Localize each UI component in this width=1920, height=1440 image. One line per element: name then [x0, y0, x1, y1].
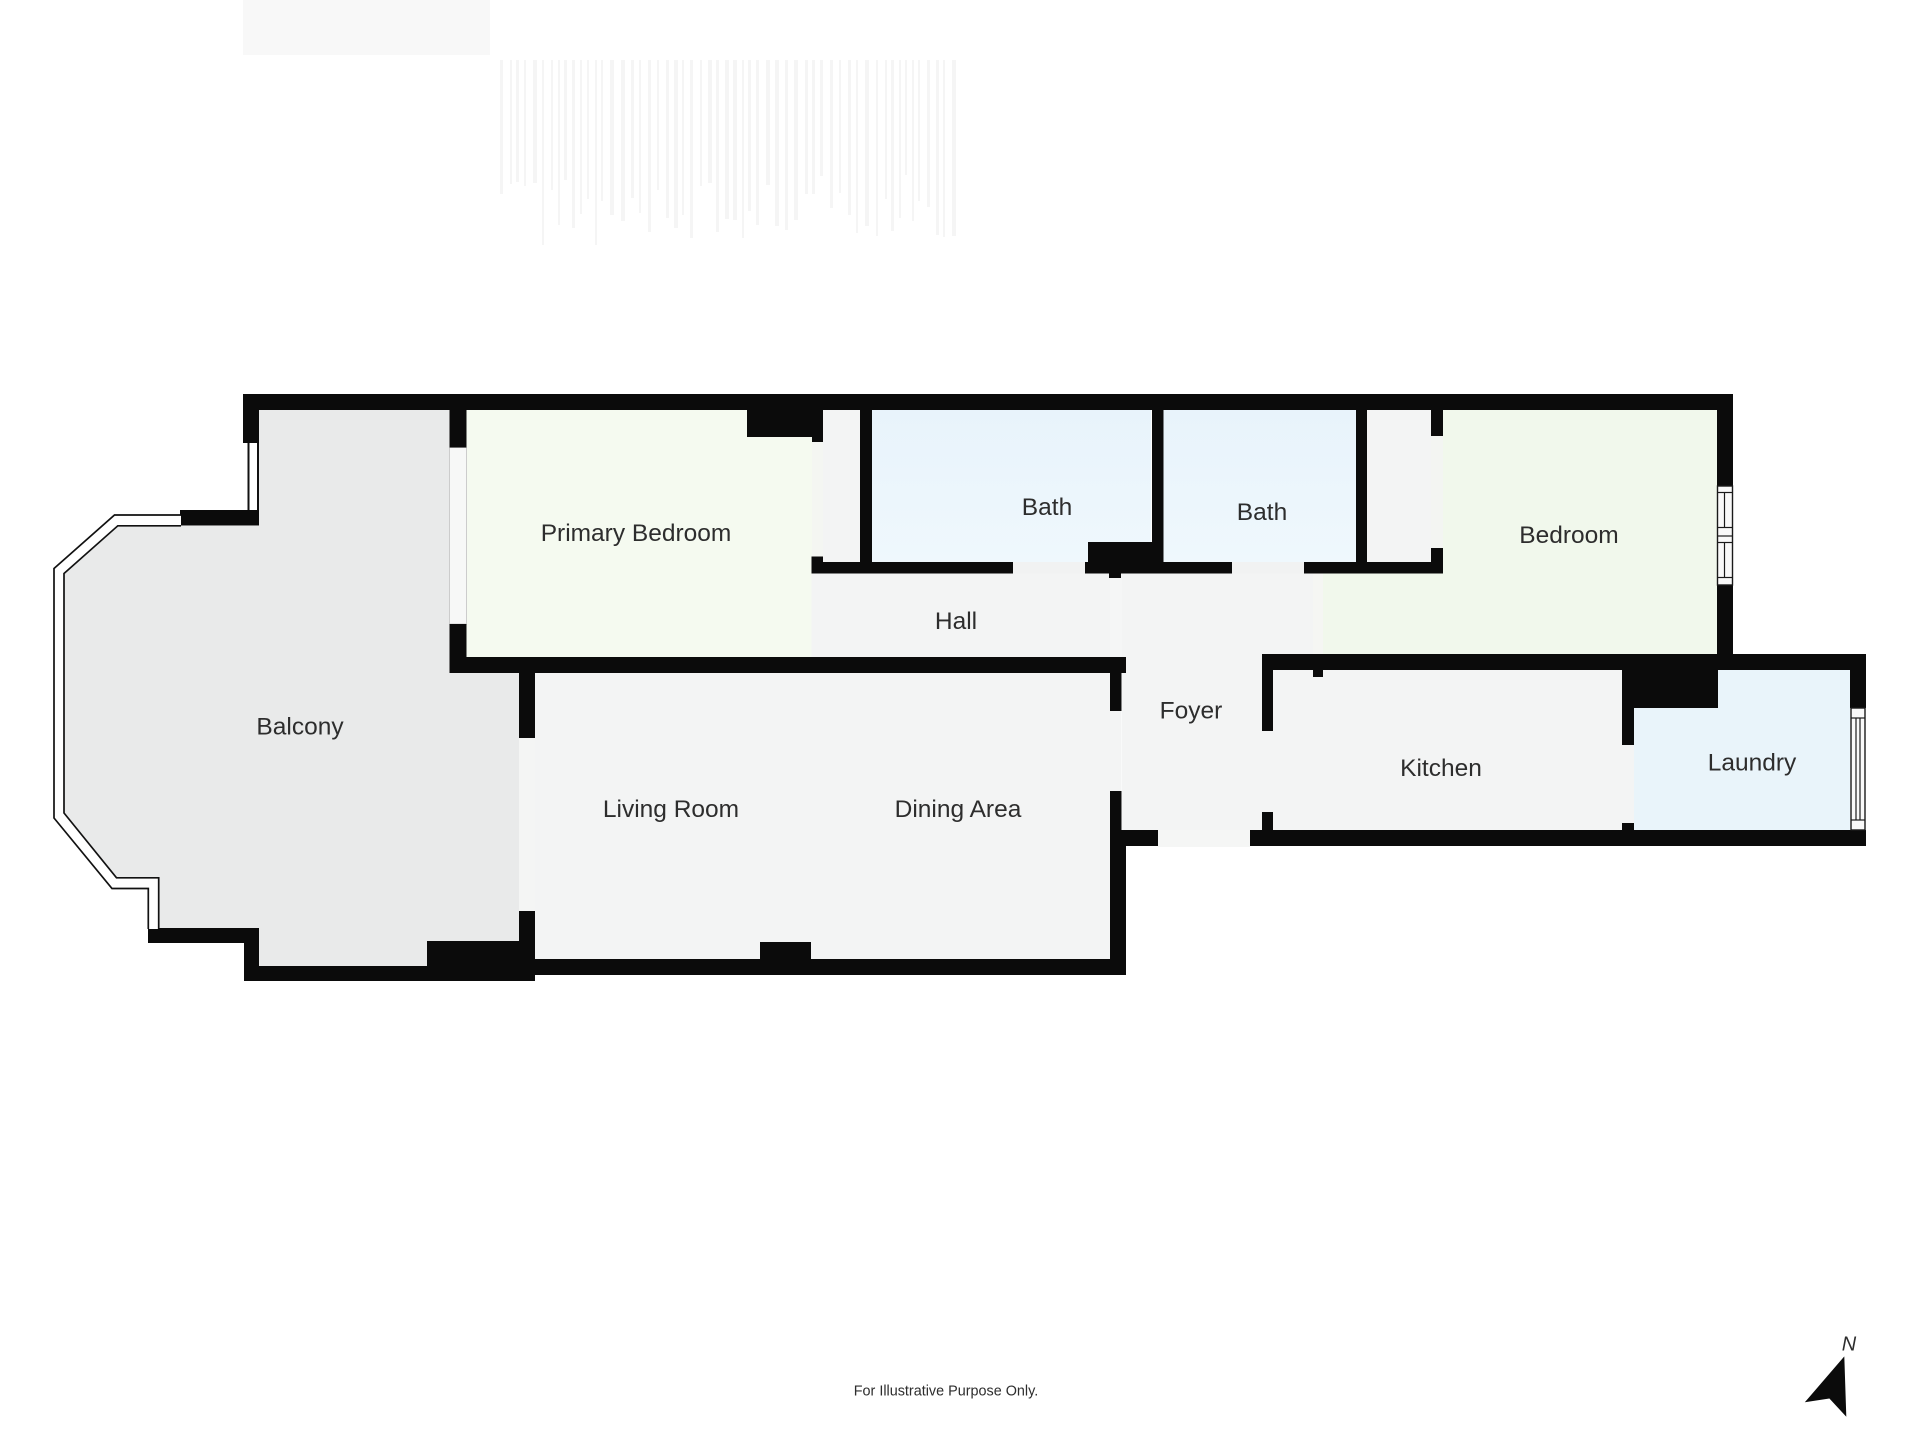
svg-text:N: N	[1842, 1334, 1857, 1356]
svg-text:Hall: Hall	[935, 608, 977, 635]
svg-text:Bath: Bath	[1237, 499, 1287, 526]
svg-text:Balcony: Balcony	[256, 714, 344, 741]
svg-text:Foyer: Foyer	[1160, 698, 1223, 725]
svg-text:Primary Bedroom: Primary Bedroom	[541, 520, 732, 547]
svg-text:For Illustrative Purpose Only.: For Illustrative Purpose Only.	[854, 1384, 1038, 1400]
svg-text:Laundry: Laundry	[1708, 750, 1797, 777]
svg-text:Living Room: Living Room	[603, 796, 739, 823]
svg-text:Bath: Bath	[1022, 494, 1072, 521]
svg-text:Dining Area: Dining Area	[895, 796, 1022, 823]
svg-text:Bedroom: Bedroom	[1519, 522, 1618, 549]
svg-text:Kitchen: Kitchen	[1400, 755, 1482, 782]
